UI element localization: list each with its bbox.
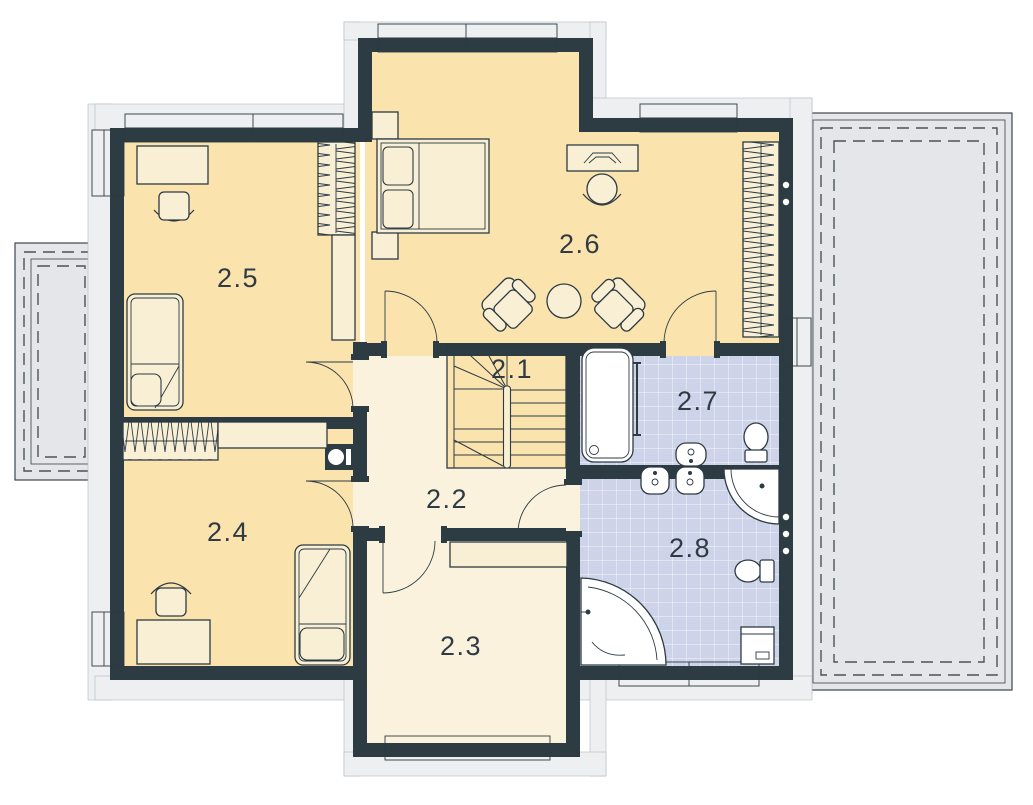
chair-icon (151, 583, 191, 616)
room-label-2-7: 2.7 (677, 386, 719, 416)
double-bed-icon (377, 139, 489, 233)
terrace-right (806, 113, 1012, 690)
room-label-2-3: 2.3 (440, 631, 482, 661)
room-label-2-1: 2.1 (491, 354, 533, 384)
chimney-detail (328, 449, 351, 465)
room-label-2-6: 2.6 (559, 229, 601, 259)
floor-plan: 2.1 2.2 2.3 2.4 2.5 2.6 2.7 2.8 (0, 0, 1033, 805)
toilet-icon (735, 560, 774, 582)
room-label-2-5: 2.5 (217, 263, 259, 293)
nightstand-icon (372, 232, 398, 259)
chair-icon (154, 192, 194, 221)
desk-icon (137, 620, 210, 664)
desk-icon (567, 145, 638, 171)
room-label-2-2: 2.2 (426, 484, 468, 514)
shelf-icon (450, 542, 567, 567)
floor-plan-drawing: 2.1 2.2 2.3 2.4 2.5 2.6 2.7 2.8 (0, 0, 1033, 805)
washing-machine-icon (741, 627, 774, 664)
side-table-icon (547, 284, 581, 318)
sink-icon (641, 467, 669, 494)
bed-icon (127, 294, 183, 410)
bed-icon (295, 545, 350, 665)
wardrobe-icon (743, 142, 779, 337)
toilet-icon (744, 423, 768, 462)
room-label-2-8: 2.8 (669, 533, 711, 563)
desk-icon (137, 146, 208, 184)
sink-icon (676, 443, 706, 466)
bathtub-icon (582, 348, 633, 462)
room-label-2-4: 2.4 (207, 517, 249, 547)
nightstand-icon (372, 112, 398, 139)
sink-icon (676, 467, 704, 494)
